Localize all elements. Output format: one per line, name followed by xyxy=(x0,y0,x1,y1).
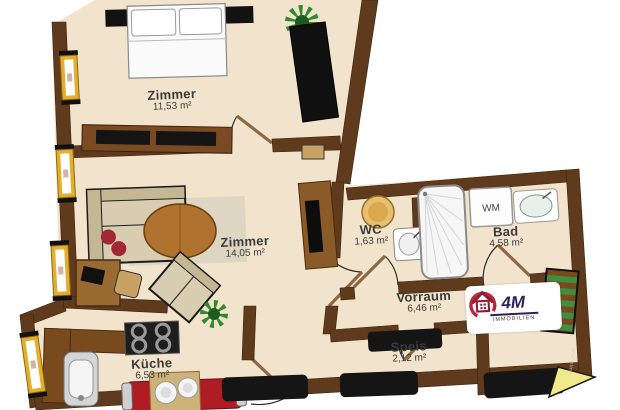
room-area: 1,63 m² xyxy=(354,236,388,248)
plant-icon xyxy=(205,305,223,323)
wall-kitchen-right xyxy=(242,306,256,360)
agency-logo: 4M IMMOBILIEN xyxy=(465,282,562,335)
washing-machine: WM xyxy=(469,187,513,227)
tv-cabinet xyxy=(298,181,337,269)
room-area: 4,58 m² xyxy=(489,238,523,250)
floor-plan: WM Zimmer 11,53 m² xyxy=(0,0,620,410)
room-label-vorraum: Vorraum 6,46 m² xyxy=(396,289,452,315)
wall-wing-bottom-1 xyxy=(340,287,355,300)
cabinet-small xyxy=(302,145,324,159)
bathroom-sink-icon xyxy=(513,189,559,224)
coffee-table xyxy=(144,204,216,258)
stove-icon xyxy=(124,321,179,355)
window-icon xyxy=(59,50,81,105)
logo-house-icon xyxy=(465,285,501,323)
pillow xyxy=(179,8,222,35)
shelf-dark xyxy=(340,371,419,398)
room-area: 2,12 m² xyxy=(391,353,428,365)
room-label-zimmer2: Zimmer 14,05 m² xyxy=(220,234,270,260)
sideboard xyxy=(82,125,232,154)
room-label-bad: Bad 4,58 m² xyxy=(489,224,524,250)
room-label-speis: Speis 2,12 m² xyxy=(390,339,427,365)
room-area: 14,05 m² xyxy=(221,248,270,261)
room-label-wc: WC 1,63 m² xyxy=(354,222,389,248)
logo-brand: 4M xyxy=(501,293,525,311)
floor-plan-drawing: WM xyxy=(0,0,620,410)
room-area: 11,53 m² xyxy=(148,101,197,114)
shower-icon xyxy=(418,185,469,279)
window-icon xyxy=(55,144,77,203)
sink-icon xyxy=(64,352,98,406)
washing-machine-label: WM xyxy=(482,203,500,215)
room-area: 6,53 m² xyxy=(131,370,173,382)
desk-chair xyxy=(113,269,142,298)
pillow xyxy=(131,9,176,36)
room-label-zimmer1: Zimmer 11,53 m² xyxy=(147,87,197,113)
room-label-kueche: Küche 6,53 m² xyxy=(131,356,173,382)
window-icon xyxy=(50,240,72,301)
sideboard-dark xyxy=(222,375,309,402)
